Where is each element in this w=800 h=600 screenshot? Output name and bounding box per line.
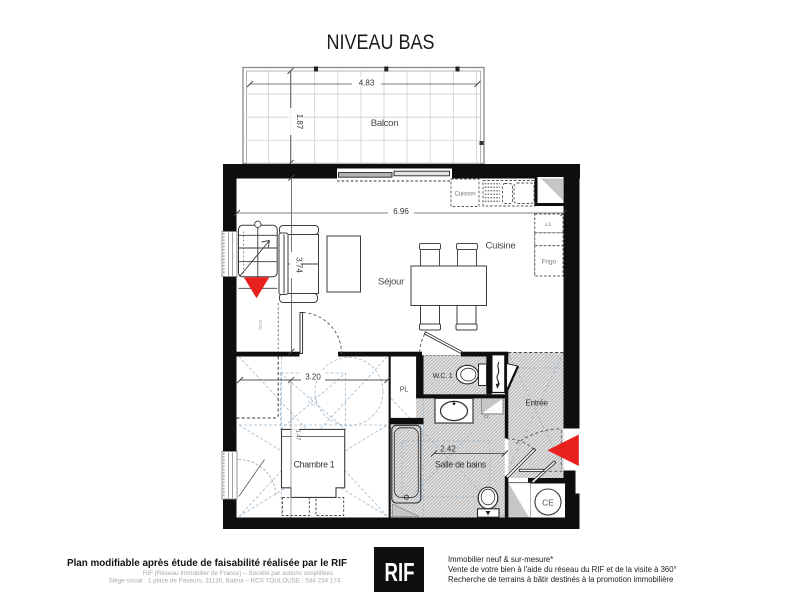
- svg-text:Siège social : 1 place de Pave: Siège social : 1 place de Paveurs, 31130…: [109, 578, 341, 585]
- svg-text:Immobilier neuf & sur-mesure*: Immobilier neuf & sur-mesure*: [448, 555, 553, 564]
- svg-text:Vente de votre bien à l'aide d: Vente de votre bien à l'aide du réseau d…: [448, 565, 677, 574]
- svg-text:Recherche de terrains à bâtir: Recherche de terrains à bâtir destinés à…: [448, 575, 673, 584]
- svg-text:3.20: 3.20: [305, 372, 321, 381]
- svg-text:3.74: 3.74: [295, 257, 304, 273]
- svg-text:Cuisson: Cuisson: [455, 190, 477, 197]
- svg-text:Balcon: Balcon: [371, 118, 399, 129]
- svg-text:1.47: 1.47: [294, 430, 300, 441]
- svg-text:LL: LL: [545, 222, 552, 228]
- svg-text:Cuisine: Cuisine: [486, 241, 516, 252]
- svg-text:CL: CL: [484, 414, 490, 419]
- svg-text:Séjour: Séjour: [378, 277, 405, 288]
- svg-text:Frigo: Frigo: [542, 259, 557, 266]
- svg-text:PL: PL: [400, 387, 409, 394]
- svg-text:2.42: 2.42: [440, 444, 456, 453]
- svg-text:1m41: 1m41: [258, 320, 263, 331]
- svg-text:6.96: 6.96: [393, 207, 409, 216]
- svg-text:4.83: 4.83: [359, 79, 375, 88]
- svg-text:RIF: RIF: [385, 557, 415, 587]
- svg-text:Plan modifiable après étude de: Plan modifiable après étude de faisabili…: [67, 558, 347, 569]
- svg-text:Entrée: Entrée: [525, 398, 548, 407]
- svg-text:1.87: 1.87: [295, 114, 304, 130]
- svg-text:Chambre 1: Chambre 1: [294, 459, 335, 469]
- svg-text:RIF (Réseau Immobilier de Fran: RIF (Réseau Immobilier de France) – Soci…: [143, 570, 333, 577]
- svg-text:NIVEAU BAS: NIVEAU BAS: [327, 31, 435, 54]
- svg-text:Salle de bains: Salle de bains: [435, 459, 487, 469]
- svg-text:CE: CE: [542, 498, 554, 508]
- svg-text:W.C. 1: W.C. 1: [433, 373, 453, 380]
